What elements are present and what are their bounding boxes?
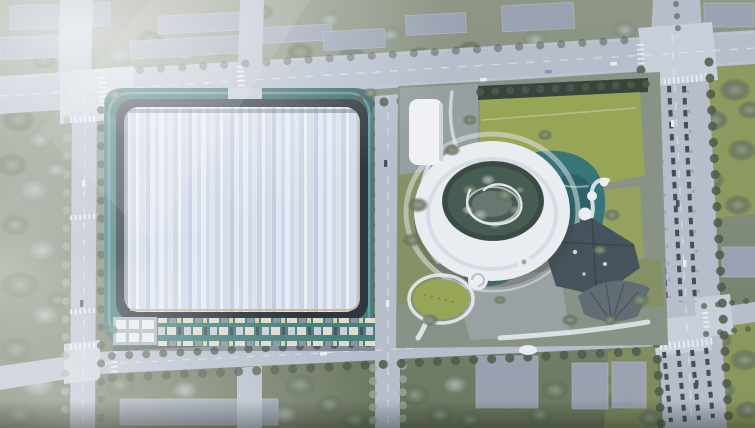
aerial-site-rendering: Bird's-eye rendering of a development si… xyxy=(0,0,755,428)
site-plan-svg: Bird's-eye rendering of a development si… xyxy=(0,0,755,428)
fog-bloom xyxy=(0,0,755,428)
bottom-vignette xyxy=(0,400,755,428)
